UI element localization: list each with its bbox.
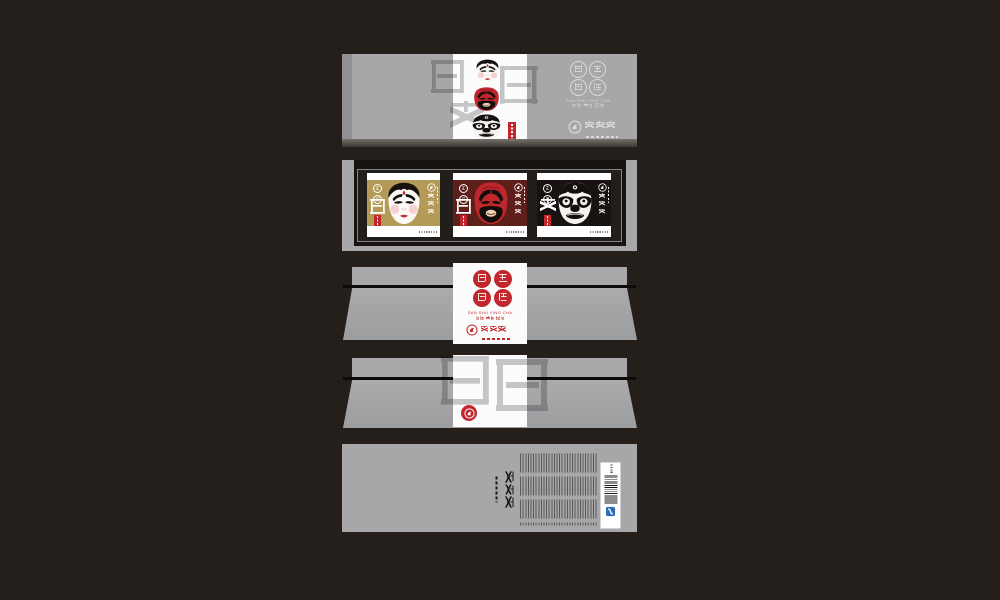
maker-emblem-icon — [514, 183, 523, 192]
packaging-design-canvas: SAN SHU YING CHA ·· — [0, 0, 1000, 600]
red-mini-seal — [374, 215, 381, 226]
rotated-print-block — [483, 450, 620, 528]
red-face-opera-mask-icon — [469, 180, 513, 226]
red-mini-seal — [460, 215, 467, 226]
sleeve-bottom-shadow — [342, 139, 637, 147]
barcode-number — [610, 464, 612, 473]
card-footer-fineprint — [590, 231, 608, 233]
maker-logo-name — [480, 325, 506, 335]
tea-card-ren — [367, 173, 440, 237]
card-footer-fineprint — [506, 231, 524, 233]
white-face-opera-mask-icon — [382, 180, 426, 226]
product-fineprint — [519, 453, 596, 525]
small-black-opera-mask-icon — [468, 113, 505, 141]
qs-certification-icon — [605, 506, 615, 516]
maker-logo — [568, 120, 616, 134]
red-stamp-seal — [461, 405, 477, 421]
red-mini-seal — [544, 215, 551, 226]
maker-emblem-icon — [466, 324, 478, 336]
tea-types-line: ·· — [458, 316, 522, 321]
card-maker-logo — [595, 183, 609, 216]
card-side-fineprint — [524, 187, 525, 203]
tea-card-yi — [453, 173, 527, 237]
card-stamp-1 — [543, 184, 552, 193]
maker-emblem-icon — [464, 408, 475, 419]
maker-emblem-icon — [598, 183, 607, 192]
card-maker-logo — [511, 183, 525, 216]
watermark-calligraphy-ying — [488, 353, 557, 424]
maker-emblem-icon — [427, 183, 436, 192]
brand-seal-4 — [494, 289, 512, 307]
box-lid-panel: SAN SHU YING CHA ·· — [342, 263, 637, 344]
maker-tagline-rule — [495, 476, 497, 502]
barcode-label — [600, 462, 620, 528]
brand-seal-2 — [589, 61, 606, 78]
barcode — [604, 475, 617, 503]
card-stamp-1 — [373, 184, 382, 193]
brand-seal-1 — [570, 61, 587, 78]
barcode-strip — [600, 450, 620, 528]
sleeve-left-fold — [342, 54, 352, 147]
brand-seal-3 — [570, 79, 587, 96]
maker-tagline-rule — [586, 136, 618, 138]
card-footer-fineprint — [419, 231, 437, 233]
card-side-fineprint — [437, 187, 438, 203]
card-side-fineprint — [608, 187, 609, 203]
tea-card-yong — [537, 173, 611, 237]
maker-logo — [466, 324, 506, 336]
brand-seal-1 — [473, 270, 491, 288]
card-maker-logo — [424, 183, 438, 216]
black-face-opera-mask-icon — [553, 180, 597, 226]
small-white-opera-mask-icon — [472, 58, 503, 85]
brand-seal-2 — [494, 270, 512, 288]
back-maker-logo — [483, 450, 515, 528]
watermark-calligraphy-ren — [426, 56, 469, 102]
maker-logo-name — [500, 450, 515, 528]
maker-logo-name — [584, 121, 616, 133]
card-stamp-1 — [459, 184, 468, 193]
gift-tray-panel — [342, 160, 637, 251]
box-lid-watermark-panel — [342, 355, 637, 428]
brand-seal-4 — [589, 79, 606, 96]
box-back-panel — [342, 444, 637, 532]
maker-tagline-rule — [482, 338, 512, 340]
sleeve-front-panel: SAN SHU YING CHA ·· — [342, 54, 637, 147]
tea-types-line: ·· — [556, 103, 620, 109]
small-red-opera-mask-icon — [470, 86, 503, 112]
brand-romanized: SAN SHU YING CHA — [458, 310, 522, 315]
brand-seal-3 — [473, 289, 491, 307]
maker-emblem-icon — [568, 120, 582, 134]
